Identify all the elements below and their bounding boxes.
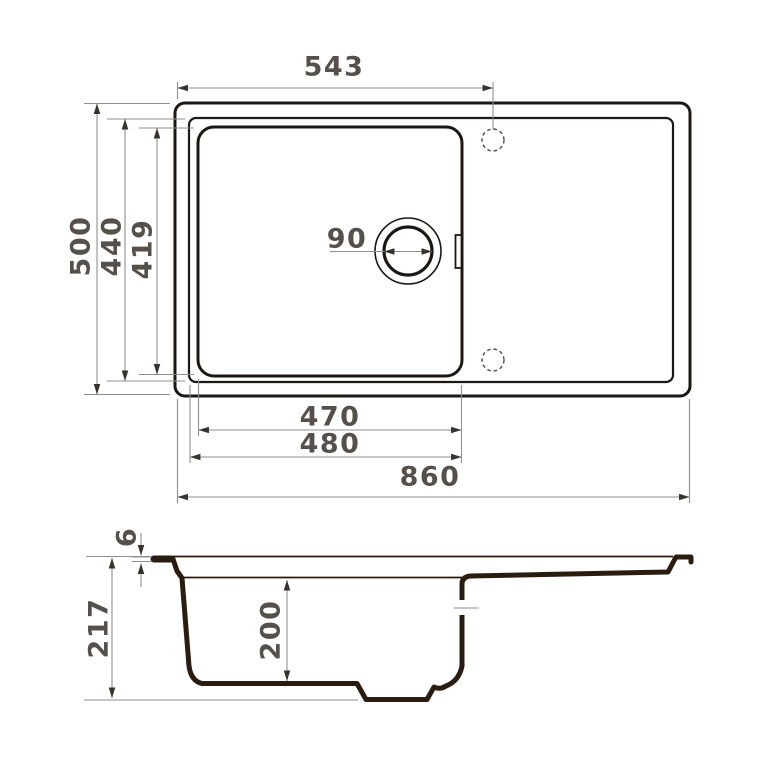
top-view: 543 500 440 419 90: [66, 52, 691, 504]
dimension-bowl-depth: 419: [128, 128, 195, 375]
faucet-hole-bottom-icon: [482, 349, 504, 371]
faucet-hole-top-icon: [482, 129, 504, 151]
dim-label-217: 217: [84, 598, 115, 659]
dim-label-543: 543: [304, 52, 365, 83]
dim-label-480: 480: [300, 429, 361, 460]
dimension-overall-width: 860: [178, 399, 690, 503]
dim-label-6: 6: [112, 527, 143, 547]
left-rim-step: [173, 559, 182, 578]
dim-label-419: 419: [128, 219, 159, 280]
overflow-notch: [456, 235, 462, 268]
sink-technical-drawing: 543 500 440 419 90: [0, 0, 768, 768]
dimension-bowl-height: 200: [256, 580, 288, 681]
dim-label-500: 500: [66, 216, 97, 277]
sink-outline: [175, 103, 690, 396]
side-view: 6 217 200: [84, 527, 692, 700]
dim-label-860: 860: [400, 462, 461, 493]
dim-label-90: 90: [327, 224, 368, 255]
section-profile: [154, 557, 691, 700]
drawing-canvas: 543 500 440 419 90: [0, 0, 768, 768]
dim-label-440: 440: [97, 216, 128, 277]
dim-label-200: 200: [256, 600, 287, 661]
